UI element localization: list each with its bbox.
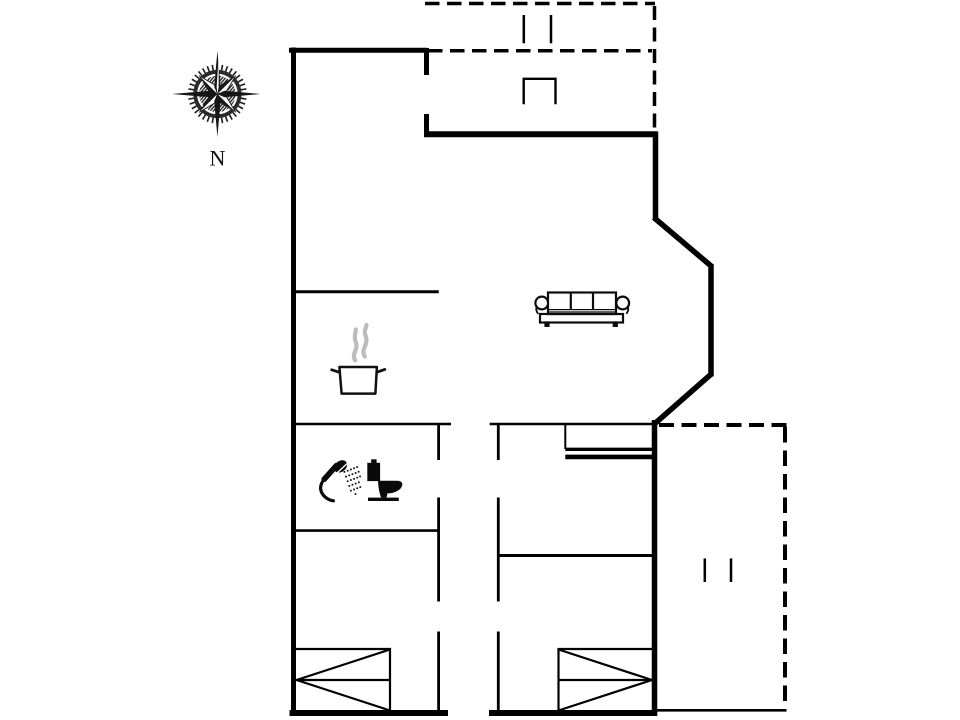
svg-text:N: N [209,146,225,171]
